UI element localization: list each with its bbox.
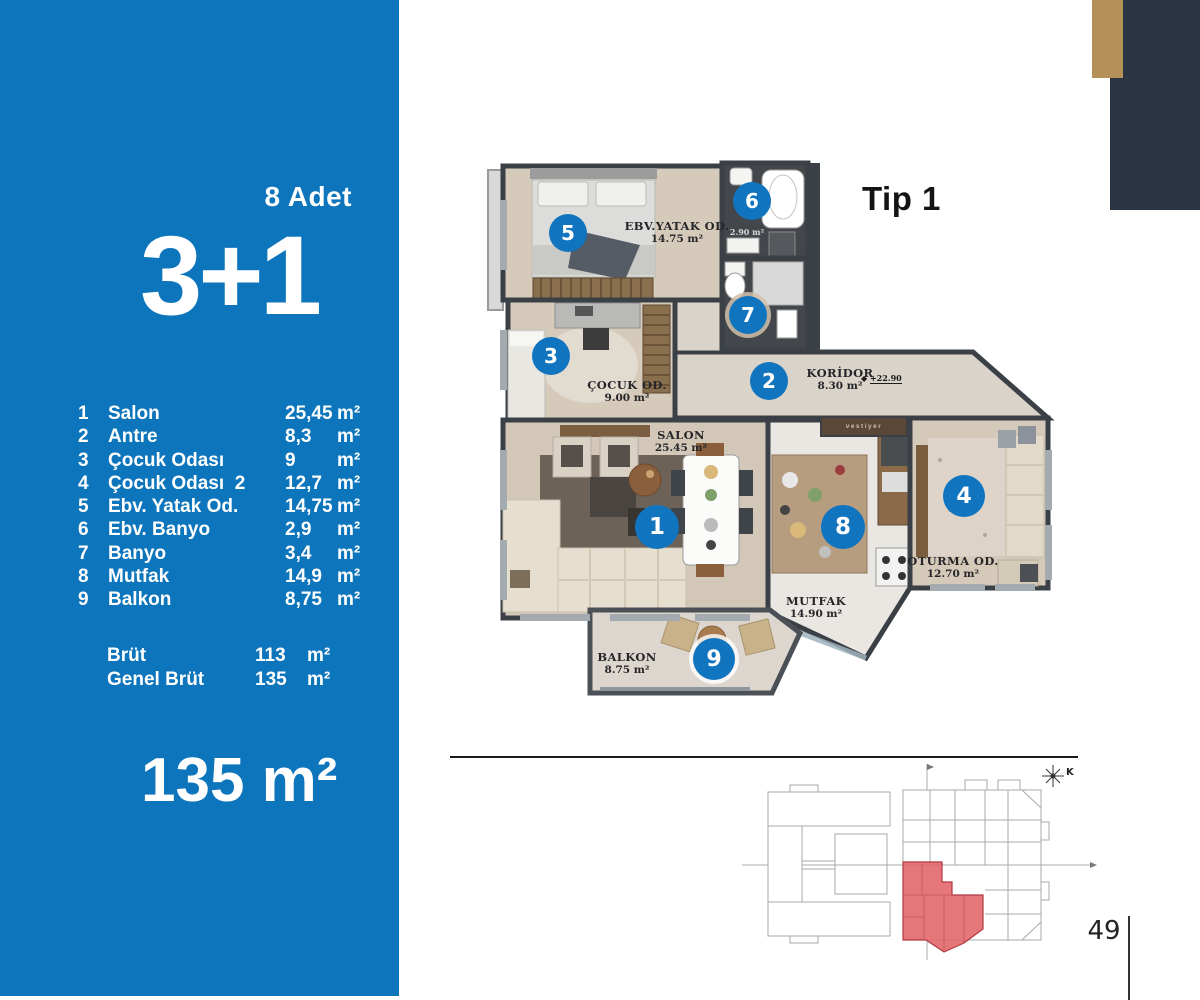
room-value: 14,75	[285, 495, 337, 518]
room-marker-9: 9	[693, 638, 735, 680]
label-oturma: OTURMA OD. 12.70 m²	[907, 554, 998, 580]
room-no: 5	[78, 495, 108, 518]
label-balkon: BALKON 8.75 m²	[597, 650, 656, 676]
room-value: 8,75	[285, 588, 337, 611]
room-marker-7: 7	[729, 296, 767, 334]
room-no: 8	[78, 565, 108, 588]
table-row: 4Çocuk Odası 212,7m²	[78, 472, 378, 495]
axis-flag	[927, 764, 934, 770]
navy-corner-block	[1110, 0, 1200, 210]
total-value: 113	[255, 644, 307, 668]
table-row: 8Mutfak14,9m²	[78, 565, 378, 588]
room-value: 8,3	[285, 425, 337, 448]
info-panel: 8 Adet 3+1 1Salon25,45m² 2Antre8,3m² 3Ço…	[0, 0, 399, 996]
room-no: 7	[78, 542, 108, 565]
closet-band: vestiyer	[820, 416, 908, 437]
room-name: Çocuk Odası 2	[108, 472, 285, 495]
room-unit: m²	[337, 565, 373, 588]
page-number-rule	[1128, 916, 1130, 1000]
total-area-headline: 135 m²	[141, 745, 337, 816]
total-unit: m²	[307, 644, 343, 668]
site-key-plan	[740, 762, 1100, 962]
total-label: Genel Brüt	[107, 668, 255, 692]
unit-type: 3+1	[140, 220, 318, 332]
table-row: 3Çocuk Odası9m²	[78, 449, 378, 472]
room-unit: m²	[337, 518, 373, 541]
room-value: 9	[285, 449, 337, 472]
room-name: Çocuk Odası	[108, 449, 285, 472]
room-value: 2,9	[285, 518, 337, 541]
total-value: 135	[255, 668, 307, 692]
unit-count: 8 Adet	[0, 181, 352, 213]
table-row: 9Balkon8,75m²	[78, 588, 378, 611]
label-ebv-yatak: EBV.YATAK OD. 14.75 m²	[625, 219, 730, 245]
room-unit: m²	[337, 472, 373, 495]
room-marker-3: 3	[532, 337, 570, 375]
total-row: Brüt113m²	[107, 644, 378, 668]
room-marker-2: 2	[750, 362, 788, 400]
room-name: Balkon	[108, 588, 285, 611]
service-shaft	[808, 163, 820, 350]
room-marker-4: 4	[943, 475, 985, 517]
room-unit: m²	[337, 495, 373, 518]
room-unit: m²	[337, 449, 373, 472]
table-row: 1Salon25,45m²	[78, 402, 378, 425]
room-no: 3	[78, 449, 108, 472]
room-list: 1Salon25,45m² 2Antre8,3m² 3Çocuk Odası9m…	[78, 402, 378, 612]
table-row: 6Ebv. Banyo2,9m²	[78, 518, 378, 541]
table-row: 5Ebv. Yatak Od.14,75m²	[78, 495, 378, 518]
room-no: 4	[78, 472, 108, 495]
room-name: Salon	[108, 402, 285, 425]
room-marker-1: 1	[635, 505, 679, 549]
site-plan-svg	[740, 762, 1100, 962]
floor-plan: vestiyer ◆ +22.90 EBV.YATAK OD. 14.75 m²…	[480, 140, 1080, 720]
room-no: 6	[78, 518, 108, 541]
total-row: Genel Brüt135m²	[107, 668, 378, 692]
table-row: 7Banyo3,4m²	[78, 542, 378, 565]
axis-arrow	[1090, 862, 1097, 868]
totals: Brüt113m² Genel Brüt135m²	[107, 644, 378, 691]
room-unit: m²	[337, 588, 373, 611]
room-name: Antre	[108, 425, 285, 448]
section-divider	[450, 756, 1078, 758]
room-value: 14,9	[285, 565, 337, 588]
room-value: 12,7	[285, 472, 337, 495]
page-number: 49	[1086, 916, 1122, 946]
room-unit: m²	[337, 542, 373, 565]
room-value: 25,45	[285, 402, 337, 425]
room-unit: m²	[337, 425, 373, 448]
label-salon: SALON 25.45 m²	[655, 428, 707, 454]
tan-corner-block	[1092, 0, 1123, 78]
table-row: 2Antre8,3m²	[78, 425, 378, 448]
label-ebv-banyo: 2.90 m²	[730, 227, 764, 237]
label-koridor: KORİDOR 8.30 m²	[807, 366, 874, 392]
total-label: Brüt	[107, 644, 255, 668]
room-name: Banyo	[108, 542, 285, 565]
total-unit: m²	[307, 668, 343, 692]
room-marker-8: 8	[821, 505, 865, 549]
room-marker-6: 6	[733, 182, 771, 220]
compass-north-label: K	[1066, 767, 1074, 778]
label-cocuk: ÇOCUK OD. 9.00 m²	[587, 378, 667, 404]
room-unit: m²	[337, 402, 373, 425]
elevation-value: +22.90	[870, 373, 902, 384]
room-name: Mutfak	[108, 565, 285, 588]
room-name: Ebv. Yatak Od.	[108, 495, 285, 518]
left-wing	[768, 785, 903, 943]
room-no: 1	[78, 402, 108, 425]
room-name: Ebv. Banyo	[108, 518, 285, 541]
compass-icon	[1042, 765, 1064, 787]
room-marker-5: 5	[549, 214, 587, 252]
room-value: 3,4	[285, 542, 337, 565]
room-no: 9	[78, 588, 108, 611]
label-mutfak: MUTFAK 14.90 m²	[786, 594, 846, 620]
room-no: 2	[78, 425, 108, 448]
